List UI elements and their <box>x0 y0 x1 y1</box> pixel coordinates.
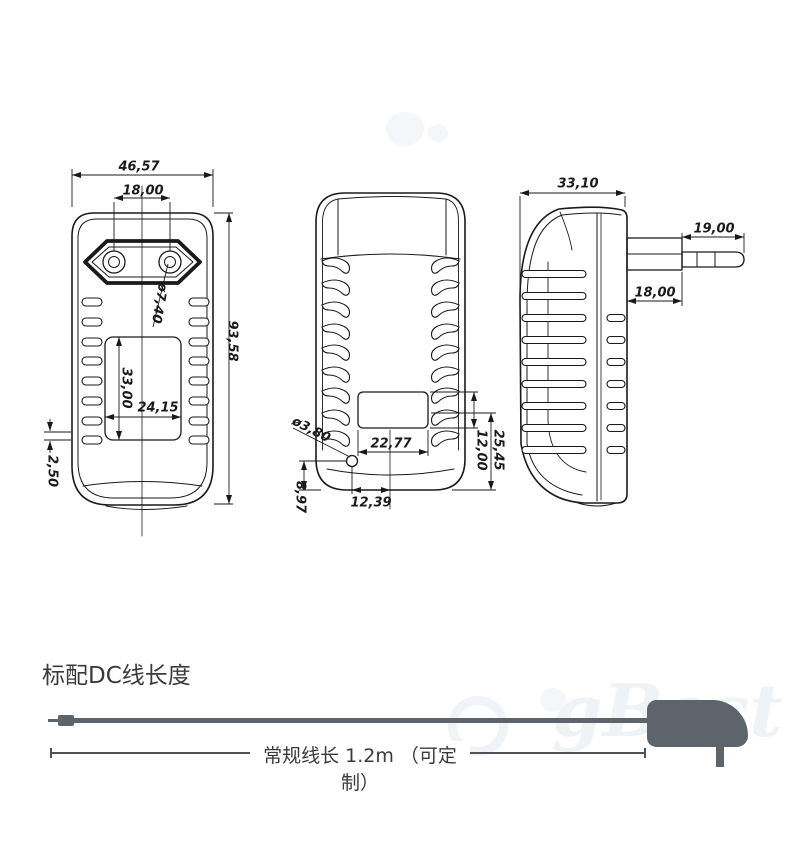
side-view <box>520 193 744 506</box>
back-view <box>293 193 496 509</box>
side-dimensions <box>520 193 744 306</box>
dim-side-body-depth: 33,10 <box>557 177 598 192</box>
back-vent-slots <box>322 258 459 446</box>
side-vent-slots <box>522 271 625 454</box>
cable-dim-line-right <box>470 752 645 754</box>
watermark-blob <box>540 688 566 712</box>
cable-dim-line-left <box>51 752 250 754</box>
dc-connector-body <box>647 700 748 747</box>
dim-front-overall-width: 46,57 <box>118 160 159 175</box>
page: gBest <box>0 0 790 862</box>
section-heading: 标配DC线长度 <box>42 656 191 690</box>
dim-back-recess-width: 22,77 <box>370 437 411 452</box>
dim-side-pin-length: 19,00 <box>693 222 734 237</box>
cable-dim-tick-right <box>644 748 646 758</box>
technical-drawing <box>0 0 790 630</box>
dim-side-pin-seat-width: 18,00 <box>634 286 675 301</box>
dim-back-recess-to-bottom: 25,45 <box>491 429 506 470</box>
dim-back-hole-offset: 12,39 <box>350 496 391 511</box>
cable-length-label: 常规线长 1.2m （可定制） <box>250 741 470 795</box>
dc-cable-ferrite <box>58 715 74 726</box>
back-recess-window <box>358 392 428 428</box>
front-label-recess <box>105 337 181 440</box>
dim-front-pin-spacing: 18,00 <box>122 184 163 199</box>
front-view <box>44 169 233 536</box>
dim-front-recess-height: 33,00 <box>119 367 134 408</box>
dc-connector-pin <box>716 746 724 767</box>
dim-front-overall-height: 93,58 <box>225 320 240 361</box>
dim-front-bottom-gap: 2,50 <box>45 455 60 487</box>
dim-front-recess-width: 24,15 <box>137 401 178 416</box>
back-screw-hole <box>347 456 358 467</box>
side-plug-pin <box>682 252 744 267</box>
front-vent-slots <box>82 298 209 444</box>
dc-cable-wire <box>73 718 648 723</box>
dim-back-recess-height: 12,00 <box>474 429 489 470</box>
dim-back-hole-height: 8,97 <box>293 481 308 513</box>
side-body-outline <box>520 207 627 503</box>
